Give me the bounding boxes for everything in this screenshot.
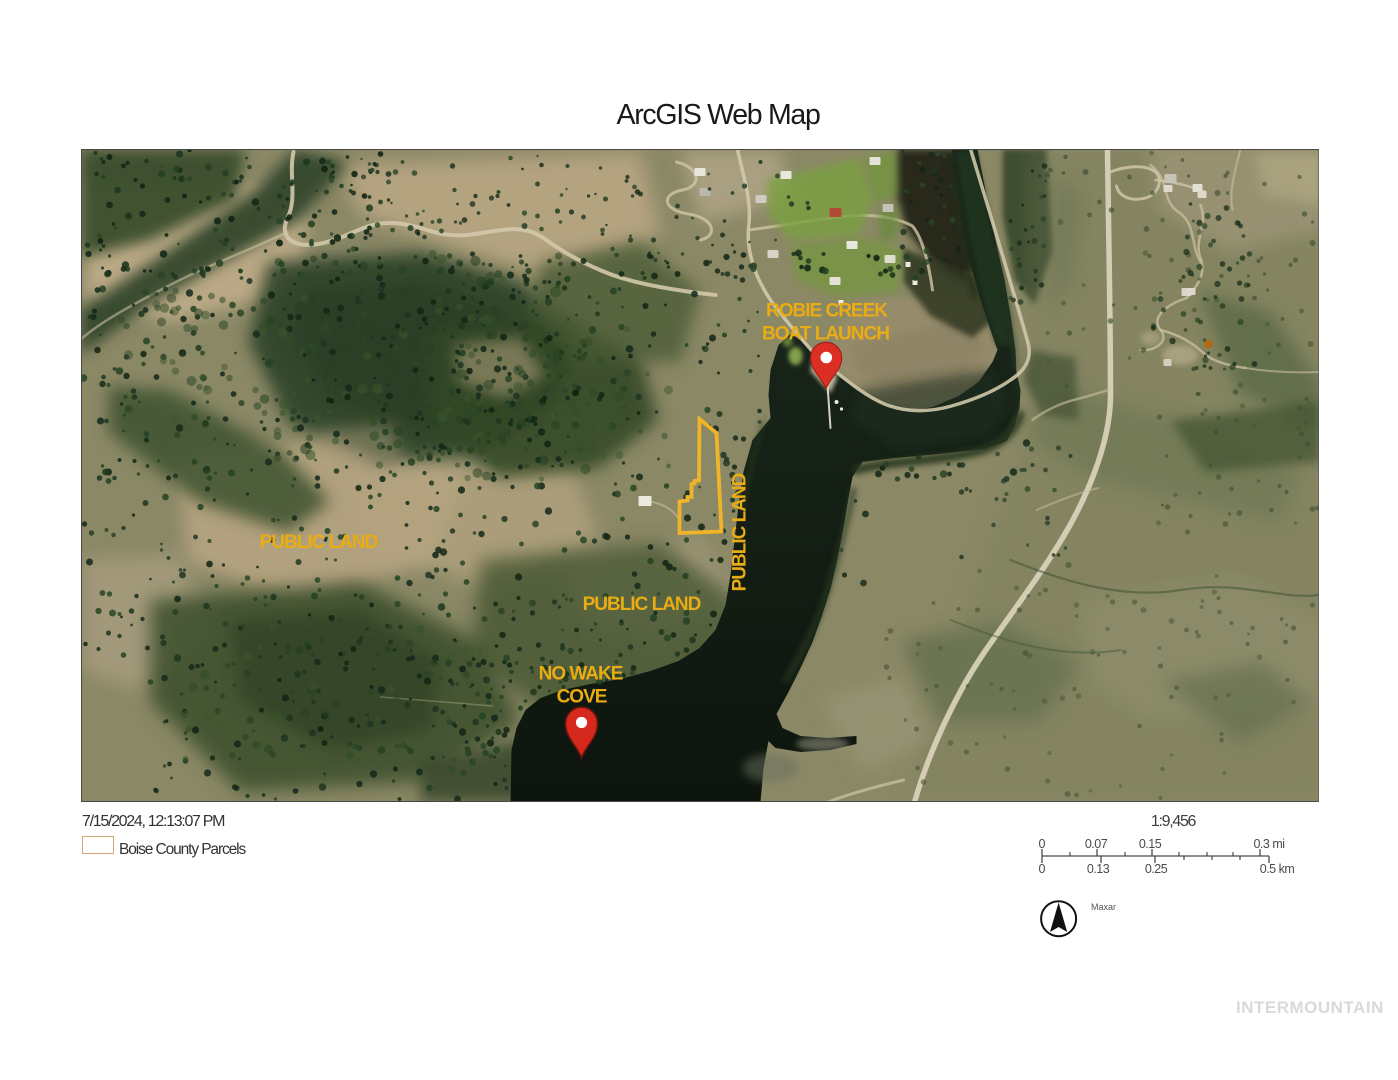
svg-text:COVE: COVE [556, 687, 606, 708]
svg-text:BOAT LAUNCH: BOAT LAUNCH [762, 324, 889, 345]
svg-text:PUBLIC LAND: PUBLIC LAND [259, 532, 377, 553]
svg-text:PUBLIC LAND: PUBLIC LAND [729, 473, 750, 591]
svg-text:ROBIE CREEK: ROBIE CREEK [766, 301, 888, 322]
svg-text:NO WAKE: NO WAKE [538, 664, 622, 685]
svg-text:PUBLIC LAND: PUBLIC LAND [582, 594, 700, 615]
